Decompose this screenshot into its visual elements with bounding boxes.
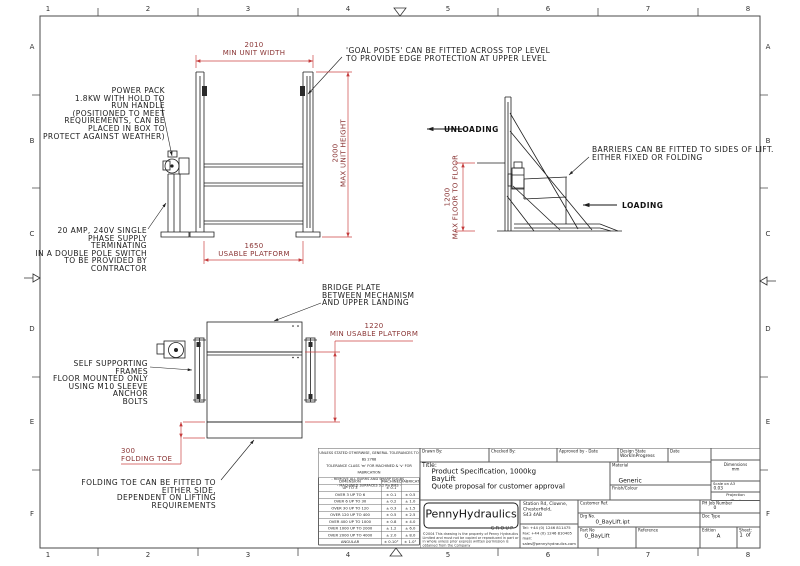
border-col-label: 5: [438, 551, 458, 559]
drawing-title: Product Specification, 1000kg BayLift Qu…: [432, 468, 610, 491]
ph-job-value: 0: [701, 506, 760, 511]
supply-note: 20 AMP, 240V SINGLE PHASE SUPPLY TERMINA…: [35, 227, 147, 273]
loading-label: LOADING: [622, 201, 663, 210]
customer-ref-cell: Customer Ref.: [578, 500, 700, 513]
folding-toe-note: FOLDING TOE CAN BE FITTED TO EITHER SIDE…: [54, 479, 216, 509]
border-row-label: B: [26, 137, 38, 145]
border-row-label: E: [26, 418, 38, 426]
border-col-label: 4: [338, 5, 358, 13]
border-col-label: 2: [138, 5, 158, 13]
scale-cell: Scale on A3 0.03: [711, 481, 760, 492]
drawing-sheet: 1 2 3 4 5 6 7 8 1 2 3 4 5 6 7 8 A B C D …: [0, 0, 800, 566]
approved-by-cell: Approved by - Date: [557, 448, 618, 462]
plan-view-dimensions: [121, 341, 413, 464]
border-row-label: E: [762, 418, 774, 426]
border-col-label: 3: [238, 5, 258, 13]
border-row-label: F: [26, 510, 38, 518]
company-logo-cell: PennyHydraulics GROUP ©2004 This drawing…: [420, 500, 520, 548]
border-col-label: 1: [38, 551, 58, 559]
ph-job-cell: PH Job Number 0: [700, 500, 760, 513]
min-usable-platform-dim: 1220 MIN USABLE PLATFORM: [324, 323, 424, 338]
company-logo: PennyHydraulics: [424, 503, 519, 529]
border-col-label: 8: [738, 5, 758, 13]
unit-width-dim: 2010 MIN UNIT WIDTH: [204, 42, 304, 57]
company-contact: Tel: +44 (0) 1246 811475 Fax: +44 (0) 12…: [521, 525, 578, 549]
sheet-cell: Sheet: 1 of: [737, 527, 760, 548]
address-cell: Station Rd, Clowne, Chesterfield, S43 4A…: [520, 500, 578, 524]
design-state-cell: Design State WorkInProgress: [618, 448, 668, 462]
border-row-label: B: [762, 137, 774, 145]
doc-type-cell: Doc Type: [700, 513, 760, 527]
side-view-leaders: [569, 157, 589, 175]
front-view-dimensions: [196, 55, 352, 264]
floor-to-floor-dim: 1200 MAX FLOOR TO FLOOR: [444, 155, 459, 240]
checked-by-cell: Checked By:: [489, 448, 557, 462]
title-cell: Title: Product Specification, 1000kg Bay…: [420, 462, 610, 500]
bridge-plate-note: BRIDGE PLATE BETWEEN MECHANISM AND UPPER…: [322, 284, 414, 307]
empty-cell: [711, 448, 760, 460]
border-col-label: 6: [538, 5, 558, 13]
contact-cell: Tel: +44 (0) 1246 811475 Fax: +44 (0) 12…: [520, 524, 578, 548]
unloading-label: UNLOADING: [444, 125, 499, 134]
plan-view: [193, 322, 317, 438]
plan-view-leaders: [150, 303, 321, 480]
border-col-label: 2: [138, 551, 158, 559]
border-row-label: A: [762, 43, 774, 51]
bottom-strip: UNLESS STATED OTHERWISE, GENERAL TOLERAN…: [318, 448, 760, 548]
part-no-value: 0_BayLift: [579, 533, 636, 540]
design-state-value: WorkInProgress: [619, 454, 668, 459]
sheet-value: 1 of: [738, 533, 760, 539]
border-col-label: 5: [438, 5, 458, 13]
edition-cell: Edition A: [700, 527, 737, 548]
barriers-note: BARRIERS CAN BE FITTED TO SIDES OF LIFT.…: [592, 146, 774, 161]
dimensions-cell: Dimensions mm: [711, 460, 760, 481]
drg-no-value: 0_BayLift.ipt: [579, 519, 700, 526]
border-row-label: F: [762, 510, 774, 518]
border-row-label: A: [26, 43, 38, 51]
finish-cell: Finish/Colour: [610, 485, 711, 500]
company-address: Station Rd, Clowne, Chesterfield, S43 4A…: [521, 501, 578, 520]
border-row-label: D: [762, 325, 774, 333]
drg-no-cell: Drg No. 0_BayLift.ipt: [578, 513, 700, 527]
front-elevation-view: [190, 72, 320, 237]
border-col-label: 6: [538, 551, 558, 559]
border-col-label: 3: [238, 551, 258, 559]
tolerance-note: UNLESS STATED OTHERWISE, GENERAL TOLERAN…: [319, 449, 420, 478]
material-value: Generic: [619, 477, 642, 484]
border-col-label: 8: [738, 551, 758, 559]
reference-cell: Reference: [636, 527, 700, 548]
scale-value: 0.03: [712, 486, 760, 491]
border-row-label: C: [762, 230, 774, 238]
company-group-label: GROUP: [491, 526, 515, 531]
border-row-label: D: [26, 325, 38, 333]
part-no-cell: Part No 0_BayLift: [578, 527, 636, 548]
side-elevation-view: [477, 97, 622, 231]
folding-toe-dim: 300 FOLDING TOE: [121, 448, 172, 463]
tolerance-block: UNLESS STATED OTHERWISE, GENERAL TOLERAN…: [318, 448, 420, 545]
plan-power-pack-symbol: [157, 341, 185, 358]
date-cell: Date: [668, 448, 711, 462]
power-pack-note: POWER PACK 1.8KW WITH HOLD TO RUN HANDLE…: [40, 87, 165, 140]
border-col-label: 4: [338, 551, 358, 559]
goal-posts-note: 'GOAL POSTS' CAN BE FITTED ACROSS TOP LE…: [346, 47, 550, 62]
drawn-by-cell: Drawn By:: [420, 448, 489, 462]
copyright-note: ©2004 This drawing is the property of Pe…: [423, 533, 519, 548]
border-col-label: 7: [638, 551, 658, 559]
border-col-label: 1: [38, 5, 58, 13]
power-pack-symbol: [161, 151, 189, 237]
material-cell: Material Generic: [610, 462, 711, 485]
edition-value: A: [701, 533, 737, 540]
self-supporting-note: SELF SUPPORTING FRAMES FLOOR MOUNTED ONL…: [40, 360, 148, 406]
unit-height-dim: 2000 MAX UNIT HEIGHT: [332, 119, 347, 187]
usable-platform-dim: 1650 USABLE PLATFORM: [205, 243, 303, 258]
border-col-label: 7: [638, 5, 658, 13]
